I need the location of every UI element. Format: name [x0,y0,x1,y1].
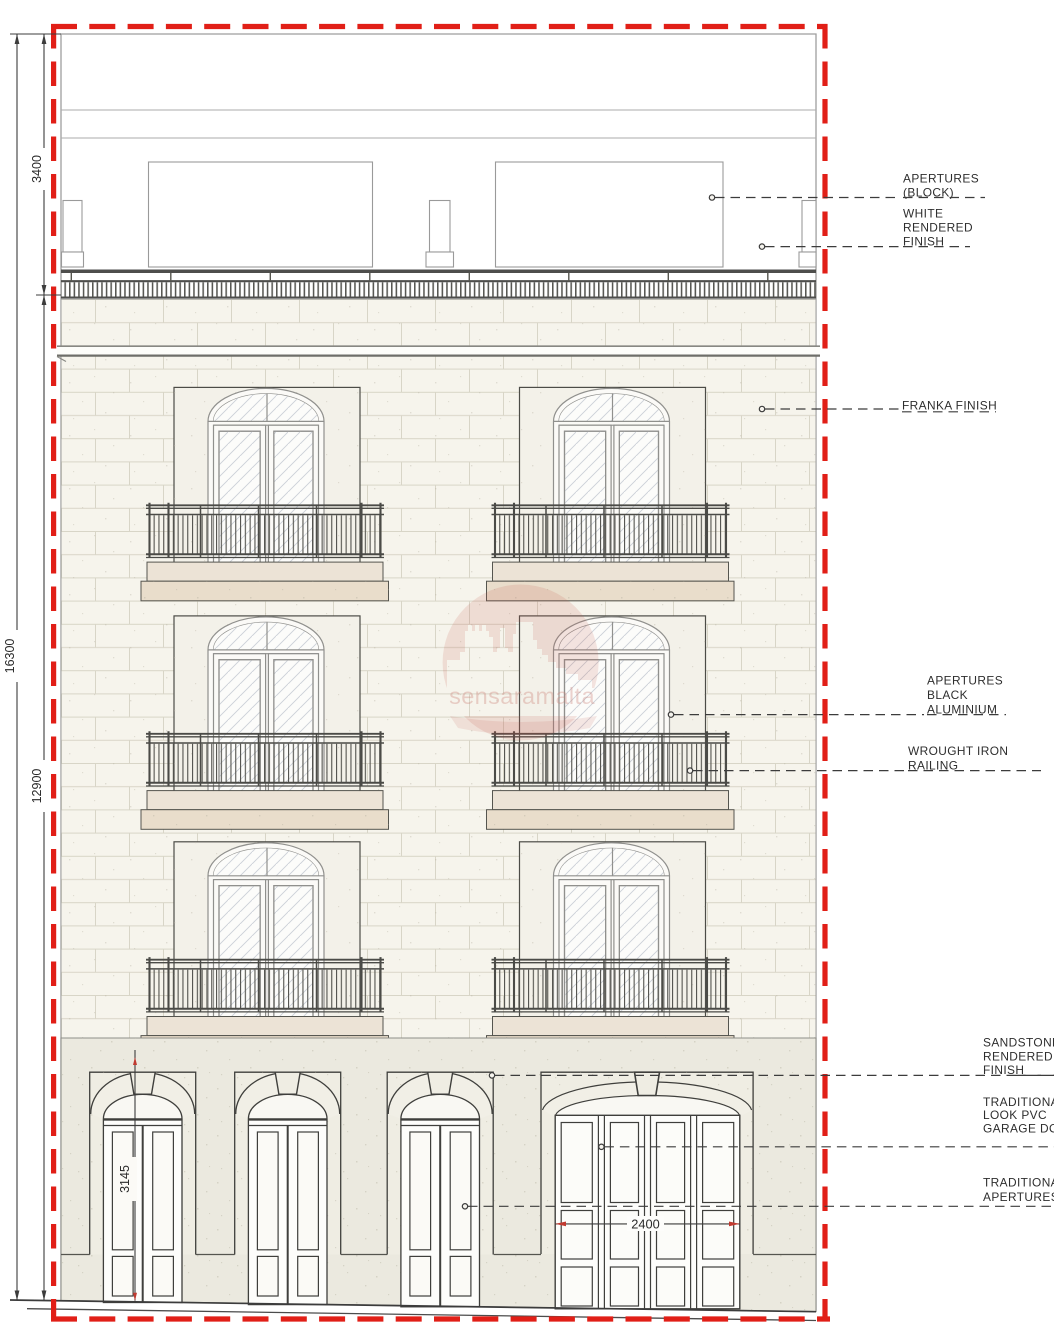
svg-text:APERTURES: APERTURES [927,674,1003,688]
svg-text:3145: 3145 [118,1165,132,1193]
svg-text:BLACK: BLACK [927,688,968,702]
svg-text:WHITE: WHITE [903,207,943,221]
svg-text:APERTURES: APERTURES [903,172,979,186]
svg-text:12900: 12900 [30,769,44,804]
svg-text:APERTURES: APERTURES [983,1190,1054,1204]
svg-text:SANDSTONE: SANDSTONE [983,1036,1054,1050]
svg-text:RENDERED: RENDERED [903,221,973,235]
svg-text:2400: 2400 [631,1217,659,1232]
svg-text:RENDERED: RENDERED [983,1049,1053,1063]
svg-text:3400: 3400 [30,155,44,183]
svg-text:LOOK PVC: LOOK PVC [983,1108,1047,1122]
svg-text:sensaramalta: sensaramalta [449,683,595,709]
svg-text:TRADITIONAL: TRADITIONAL [983,1176,1054,1190]
svg-text:FRANKA FINISH: FRANKA FINISH [902,398,997,412]
svg-text:GARAGE DOOR: GARAGE DOOR [983,1121,1054,1135]
svg-text:TRADITIONAL: TRADITIONAL [983,1095,1054,1109]
svg-text:16300: 16300 [3,639,17,674]
svg-text:WROUGHT IRON: WROUGHT IRON [908,744,1008,758]
